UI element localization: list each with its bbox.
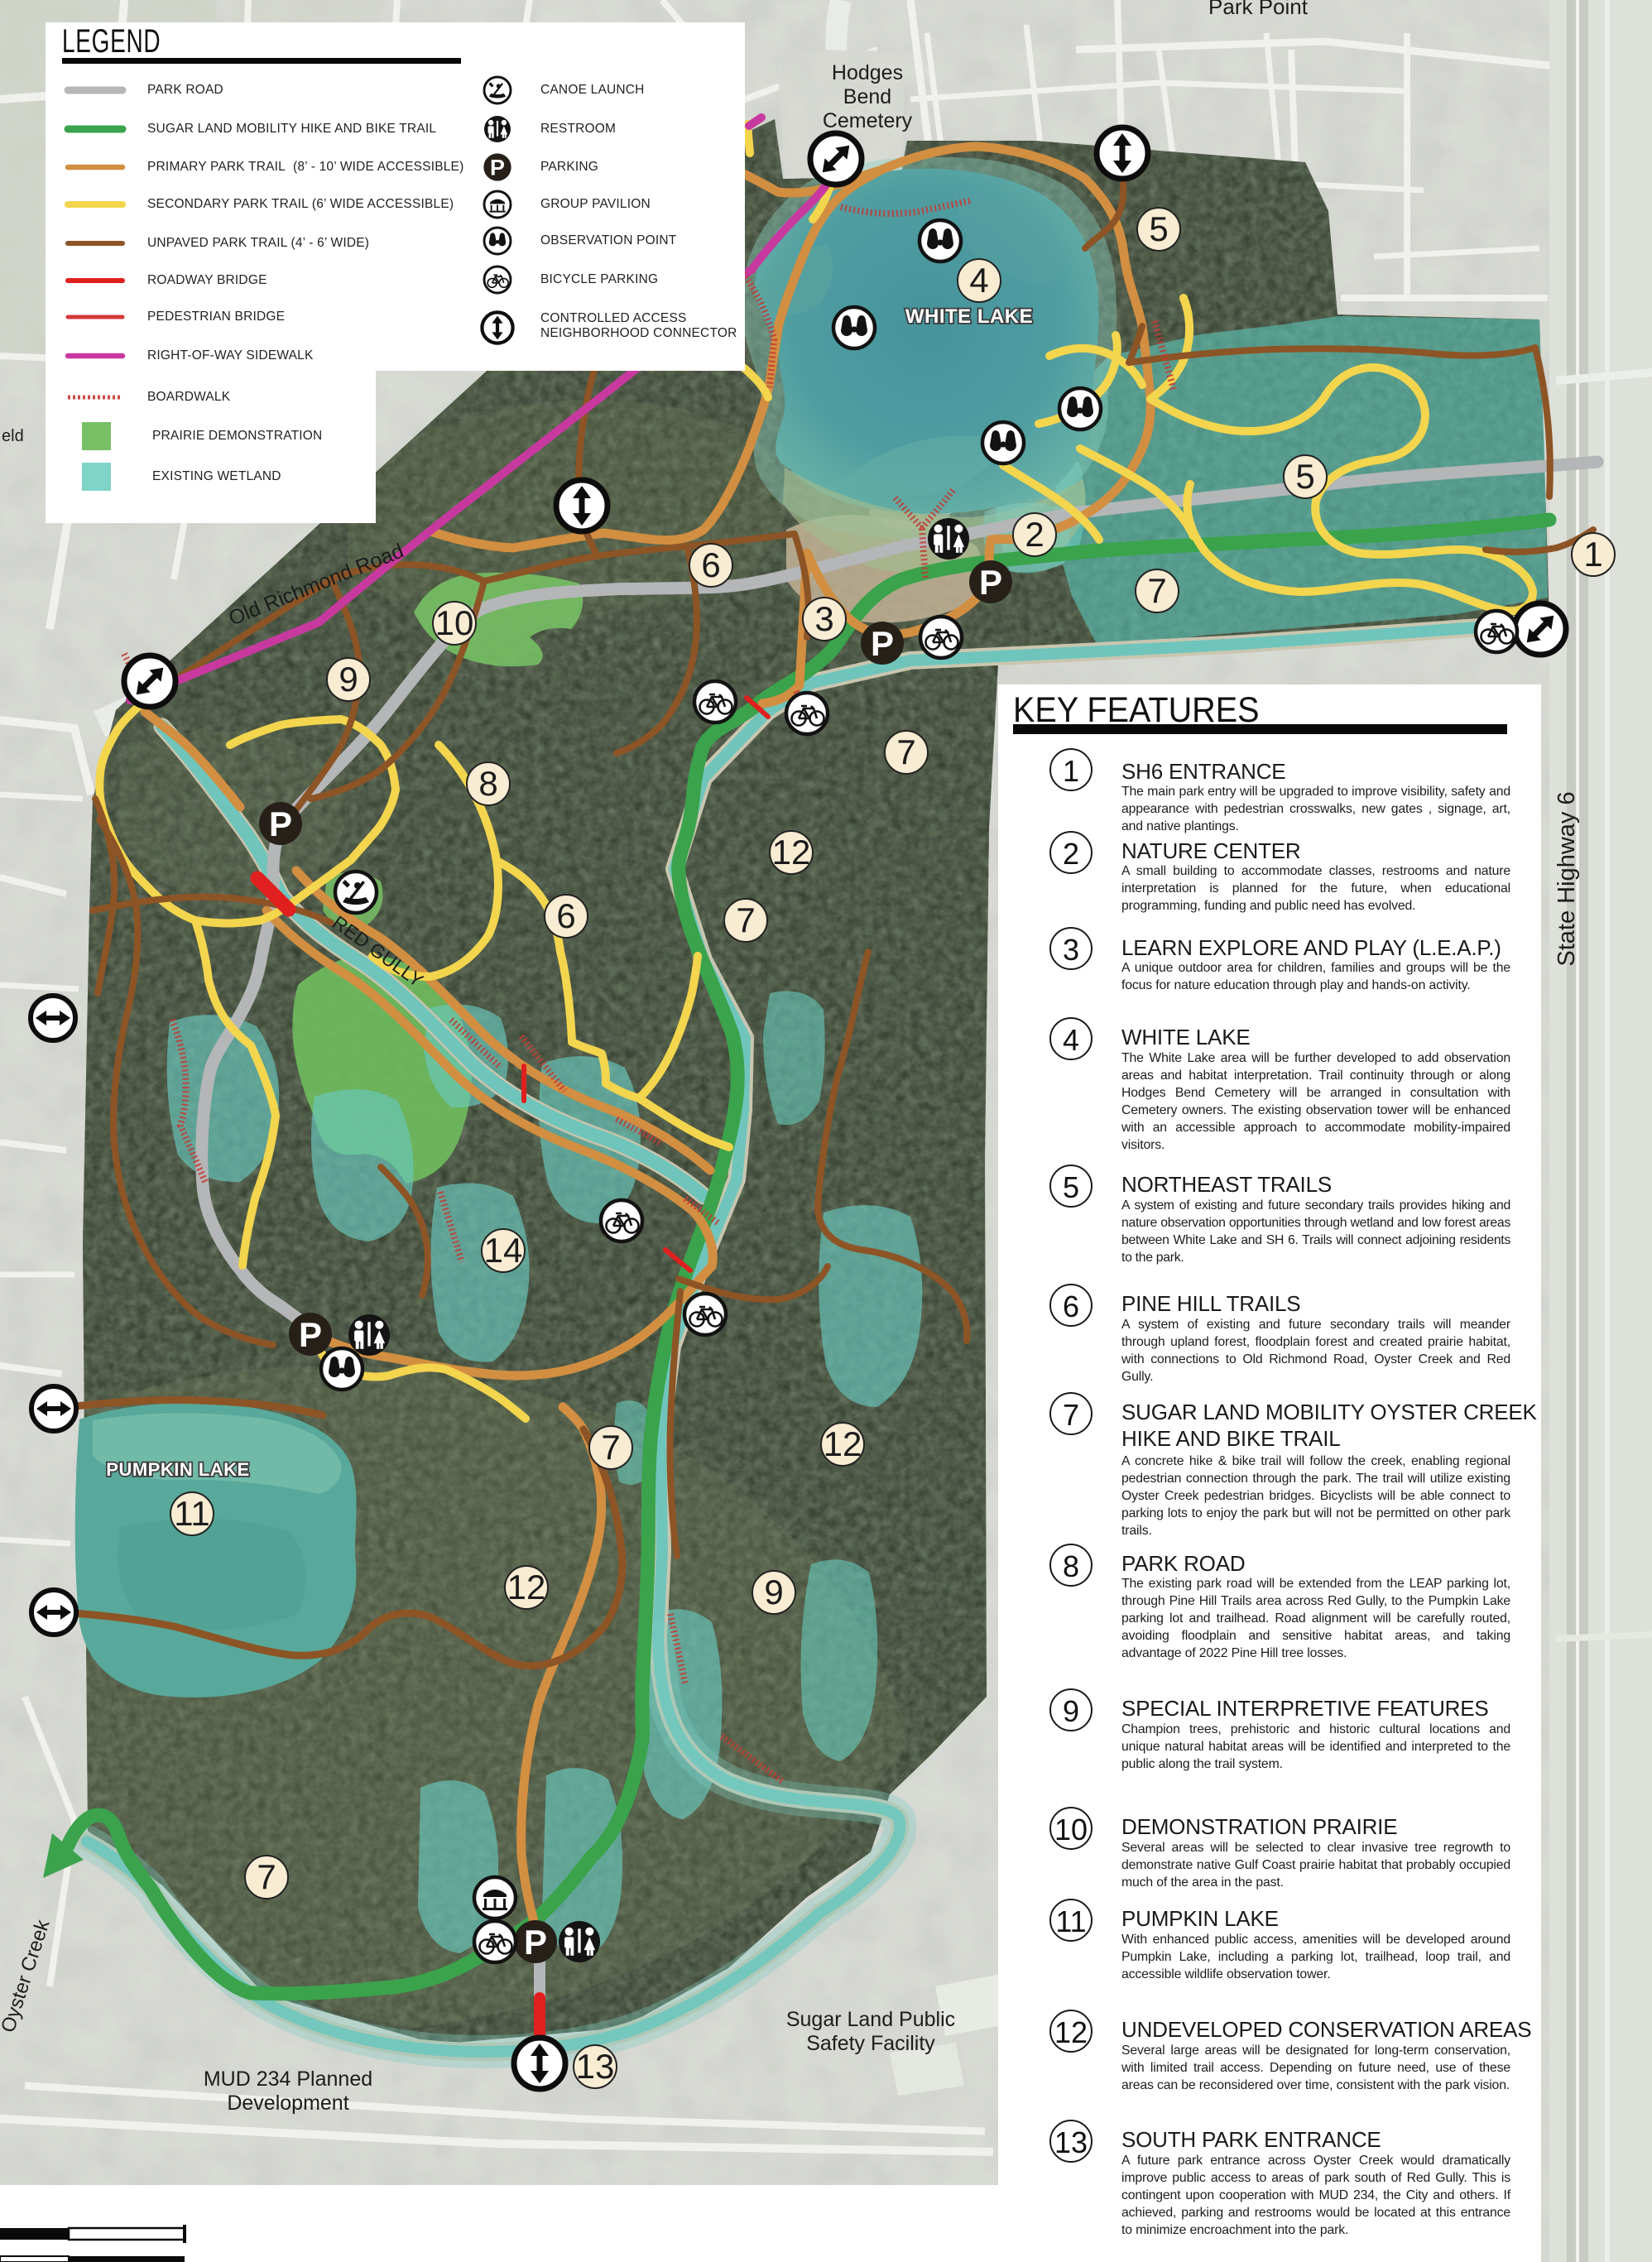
svg-text:7: 7 bbox=[736, 900, 755, 939]
svg-text:7: 7 bbox=[601, 1428, 620, 1467]
svg-text:Development: Development bbox=[227, 2092, 348, 2115]
svg-text:7: 7 bbox=[1147, 571, 1166, 610]
svg-text:State Highway 6: State Highway 6 bbox=[1554, 791, 1580, 966]
svg-text:Bend: Bend bbox=[843, 85, 891, 108]
svg-text:14: 14 bbox=[484, 1231, 523, 1270]
svg-text:13: 13 bbox=[576, 2047, 615, 2086]
svg-text:4: 4 bbox=[969, 261, 988, 300]
svg-text:6: 6 bbox=[701, 545, 720, 584]
svg-text:PUMPKIN LAKE: PUMPKIN LAKE bbox=[106, 1459, 249, 1480]
svg-text:7: 7 bbox=[257, 1857, 276, 1896]
svg-text:11: 11 bbox=[174, 1494, 210, 1533]
svg-text:9: 9 bbox=[764, 1573, 783, 1611]
svg-text:Hodges: Hodges bbox=[832, 61, 903, 84]
svg-text:5: 5 bbox=[1295, 457, 1314, 496]
svg-text:Sugar Land Public: Sugar Land Public bbox=[786, 2008, 955, 2031]
svg-text:Cemetery: Cemetery bbox=[823, 109, 913, 132]
svg-text:1: 1 bbox=[1583, 535, 1602, 574]
svg-text:6: 6 bbox=[556, 896, 575, 935]
svg-text:Safety Facility: Safety Facility bbox=[806, 2032, 935, 2055]
svg-text:2: 2 bbox=[1025, 515, 1044, 554]
svg-text:3: 3 bbox=[814, 599, 833, 638]
svg-text:12: 12 bbox=[507, 1568, 546, 1606]
svg-text:7: 7 bbox=[896, 732, 915, 771]
svg-text:8: 8 bbox=[478, 764, 497, 803]
svg-text:5: 5 bbox=[1149, 209, 1168, 248]
svg-text:9: 9 bbox=[339, 660, 358, 699]
svg-text:Park Point: Park Point bbox=[1208, 0, 1309, 19]
svg-text:12: 12 bbox=[824, 1424, 862, 1463]
svg-text:MUD 234 Planned: MUD 234 Planned bbox=[204, 2067, 372, 2091]
svg-text:WHITE LAKE: WHITE LAKE bbox=[905, 305, 1033, 328]
svg-text:12: 12 bbox=[772, 833, 811, 872]
svg-text:10: 10 bbox=[435, 603, 474, 642]
